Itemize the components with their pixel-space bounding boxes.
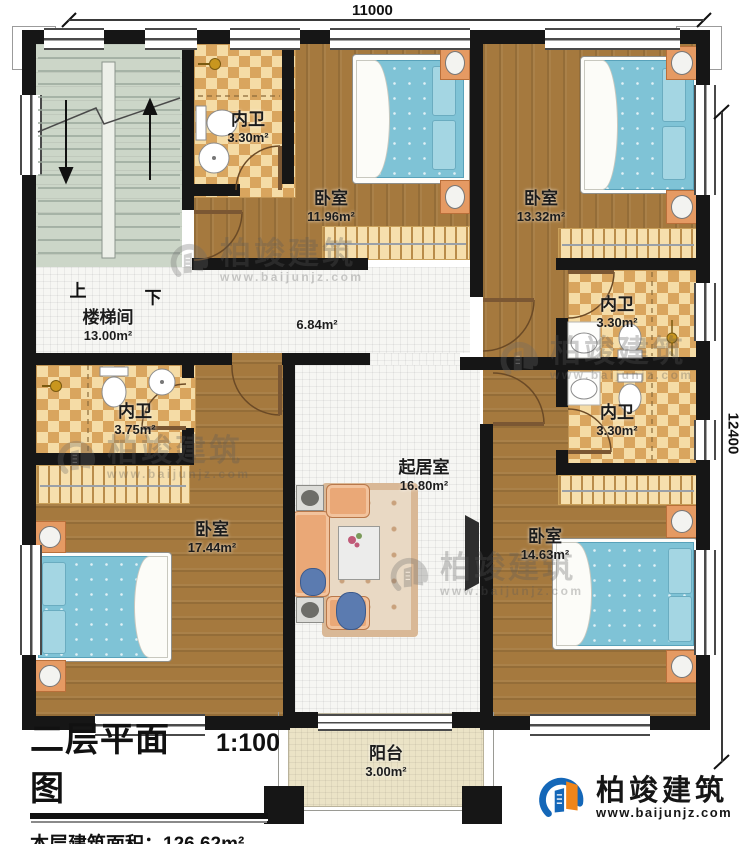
- wall-segment: [696, 30, 710, 85]
- wall-segment: [300, 30, 330, 44]
- brand-logo: 柏竣建筑 www.baijunjz.com: [536, 772, 732, 824]
- nightstand: [666, 505, 698, 538]
- nightstand: [440, 180, 470, 214]
- brand-name: 柏竣建筑: [596, 776, 732, 806]
- wall-segment: [192, 258, 368, 270]
- wall-segment: [22, 175, 36, 545]
- person-figure: [300, 568, 326, 596]
- wall-segment: [36, 453, 194, 465]
- window: [694, 283, 716, 341]
- wall-segment: [556, 463, 700, 475]
- corner-table-plant: [296, 597, 324, 623]
- floor-plan-canvas: 11000 12400 柏竣建筑www.baijunjz.com 柏竣建筑www…: [0, 0, 750, 844]
- room-label-balcony: 阳台 3.00m²: [365, 744, 406, 780]
- nightstand: [666, 46, 698, 80]
- wall-segment: [470, 30, 545, 44]
- plant-icon: [301, 490, 319, 506]
- room-label-bedroom-top-right: 卧室 13.32m²: [517, 189, 565, 225]
- bed-pillow: [42, 610, 66, 654]
- room-label-bedroom-bottom-right: 卧室 14.63m²: [521, 527, 569, 563]
- wall-segment: [188, 353, 232, 365]
- wall-segment: [556, 450, 568, 463]
- bed-pillow: [432, 120, 456, 170]
- wall-segment: [556, 318, 568, 360]
- room-label-bath-top-left: 内卫 3.30m²: [227, 110, 268, 146]
- wall-segment: [282, 44, 294, 184]
- title-underline: [30, 813, 268, 821]
- nightstand-fan: [671, 510, 693, 533]
- room-label-bedroom-bottom-left: 卧室 17.44m²: [188, 520, 236, 556]
- bed-pillow: [668, 596, 692, 642]
- bed-pillow: [668, 548, 692, 594]
- nightstand-fan: [39, 526, 61, 548]
- window: [694, 85, 716, 195]
- person-figure: [336, 592, 366, 630]
- wall-segment: [460, 357, 700, 370]
- window: [20, 95, 42, 175]
- dimension-line-right: [721, 112, 723, 762]
- stair-up-label: 上: [70, 277, 87, 302]
- stairwell-floor: [36, 44, 182, 267]
- floor-area-line: 本层建筑面积：126.62m²: [30, 829, 280, 844]
- dimension-label-top: 11000: [352, 2, 393, 19]
- bed-blanket: [584, 60, 618, 190]
- window: [694, 550, 716, 655]
- wall-segment: [556, 370, 568, 407]
- tv-icon: [465, 515, 479, 591]
- wall-segment: [182, 353, 194, 378]
- wall-segment: [480, 716, 530, 730]
- wall-segment: [470, 44, 483, 297]
- closet-top-middle: [322, 226, 470, 260]
- bed-blanket: [134, 556, 168, 658]
- window: [230, 28, 300, 50]
- wall-pier: [452, 712, 480, 728]
- page-title: 二层平面图: [30, 712, 202, 810]
- room-label-bedroom-top-middle: 卧室 11.96m²: [307, 189, 355, 225]
- wall-segment: [556, 258, 700, 270]
- room-label-bath-right-upper: 内卫 3.30m²: [596, 295, 637, 331]
- bed-pillow: [42, 562, 66, 606]
- window: [694, 420, 716, 460]
- closet-bottom-left: [36, 465, 190, 504]
- dimension-line-top: [68, 19, 704, 21]
- plant-icon: [301, 602, 319, 618]
- nightstand: [666, 190, 698, 224]
- brand-logo-glyph: [536, 772, 588, 824]
- floor-area-label: 本层建筑面积：: [30, 834, 163, 844]
- window: [145, 28, 197, 50]
- closet-rail: [40, 485, 186, 487]
- nightstand: [34, 660, 66, 692]
- room-label-bath-mid-left: 内卫 3.75m²: [114, 402, 155, 438]
- coffee-table: [338, 526, 380, 580]
- closet-rail: [326, 243, 466, 245]
- room-label-hallway: 6.84m²: [296, 317, 337, 333]
- bed-blanket: [356, 60, 390, 178]
- nightstand-fan: [39, 665, 61, 687]
- floor-area-value: 126.62m²: [163, 834, 244, 844]
- window: [44, 28, 104, 50]
- closet-top-right: [558, 228, 698, 260]
- room-label-stairwell: 楼梯间 13.00m²: [83, 308, 134, 344]
- window: [545, 28, 680, 50]
- wall-segment: [197, 30, 230, 44]
- wall-segment: [650, 716, 710, 730]
- closet-rail: [562, 244, 695, 246]
- nightstand-fan: [671, 655, 693, 678]
- dimension-label-right: 12400: [724, 413, 741, 455]
- wall-segment: [194, 184, 240, 196]
- drawing-scale: 1:100: [216, 729, 280, 758]
- closet-rail: [562, 490, 695, 492]
- nightstand-fan: [445, 51, 465, 75]
- stair-down-label: 下: [145, 284, 162, 309]
- wall-segment: [22, 30, 36, 95]
- wall-segment: [283, 353, 295, 716]
- nightstand-fan: [671, 51, 693, 75]
- closet-bottom-right: [558, 475, 698, 505]
- room-label-bath-right-lower: 内卫 3.30m²: [596, 403, 637, 439]
- window: [330, 28, 470, 50]
- wall-segment: [282, 353, 370, 365]
- room-label-living-room: 起居室 16.80m²: [399, 458, 450, 494]
- nightstand: [440, 46, 470, 80]
- nightstand-fan: [445, 185, 465, 209]
- title-block: 二层平面图 1:100 本层建筑面积：126.62m² 层高：3.30m: [30, 712, 280, 844]
- brand-url: www.baijunjz.com: [596, 806, 732, 820]
- wall-segment: [36, 353, 182, 365]
- window: [530, 714, 650, 736]
- wall-segment: [696, 341, 710, 420]
- balcony-sliding-door: [318, 714, 452, 731]
- wall-segment: [104, 30, 145, 44]
- bed-pillow: [662, 126, 686, 180]
- wall-segment: [480, 424, 493, 716]
- corner-table-plant: [296, 485, 324, 511]
- wall-segment: [182, 44, 194, 210]
- nightstand-fan: [671, 195, 693, 219]
- sofa-loveseat: [326, 484, 370, 518]
- window: [20, 545, 42, 655]
- balcony-column: [462, 786, 502, 824]
